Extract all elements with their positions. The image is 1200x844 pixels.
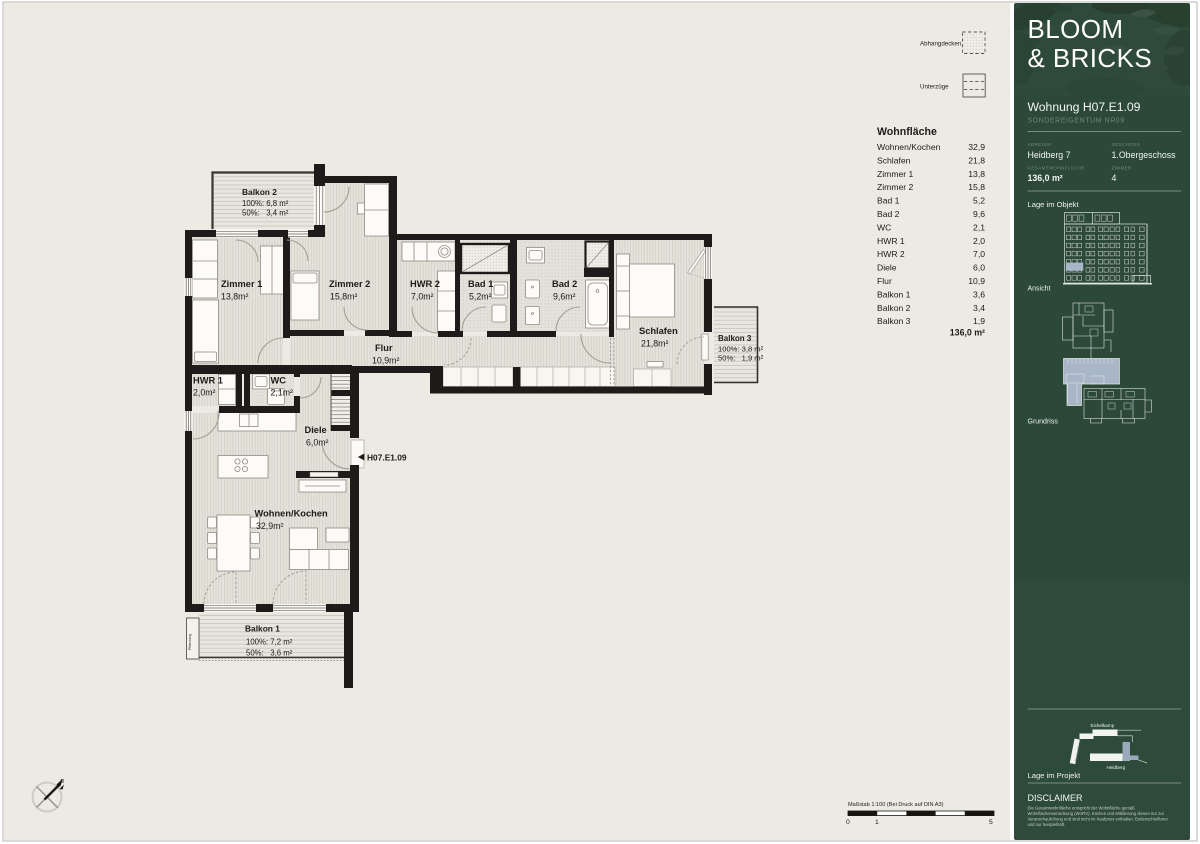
svg-text:Diele: Diele [877, 263, 897, 273]
svg-text:HWR 2: HWR 2 [877, 249, 905, 259]
svg-text:N: N [60, 779, 64, 785]
svg-text:GESCHOSS: GESCHOSS [1112, 142, 1141, 147]
svg-text:13,8m²: 13,8m² [221, 292, 248, 302]
svg-text:ADRESSE: ADRESSE [1028, 142, 1052, 147]
svg-text:Zimmer 1: Zimmer 1 [221, 279, 262, 289]
svg-text:2,0: 2,0 [973, 236, 985, 246]
svg-text:0: 0 [846, 819, 850, 826]
svg-text:9,6: 9,6 [973, 209, 985, 219]
svg-text:WC: WC [271, 376, 287, 386]
svg-text:Wohnfläche: Wohnfläche [877, 126, 937, 138]
svg-text:50%: 3,4 m²: 50%: 3,4 m² [242, 209, 289, 218]
svg-text:Schlafen: Schlafen [877, 155, 911, 165]
svg-text:5,2: 5,2 [973, 196, 985, 206]
svg-text:Balkon 3: Balkon 3 [877, 316, 911, 326]
svg-text:Flur: Flur [375, 343, 393, 353]
svg-text:Grundriss: Grundriss [1028, 419, 1059, 426]
svg-text:Ansicht: Ansicht [1028, 286, 1051, 293]
svg-text:15,8m²: 15,8m² [330, 292, 357, 302]
svg-text:Wohnen/Kochen: Wohnen/Kochen [877, 142, 941, 152]
svg-text:3,6: 3,6 [973, 289, 985, 299]
svg-text:Wohnen/Kochen: Wohnen/Kochen [255, 509, 328, 519]
svg-text:Bad 2: Bad 2 [552, 279, 577, 289]
svg-text:Maßstab 1:100 (Bei Druck auf D: Maßstab 1:100 (Bei Druck auf DIN A3) [848, 802, 944, 808]
svg-text:& BRICKS: & BRICKS [1028, 43, 1153, 73]
svg-text:Bad 2: Bad 2 [877, 209, 900, 219]
svg-text:Heidberg 7: Heidberg 7 [1028, 150, 1071, 160]
svg-text:und nur beispielhaft.: und nur beispielhaft. [1028, 822, 1066, 827]
svg-text:10,9: 10,9 [968, 276, 985, 286]
svg-text:Flur: Flur [877, 276, 892, 286]
svg-text:1,9: 1,9 [973, 316, 985, 326]
svg-text:Heidberg: Heidberg [1107, 765, 1126, 770]
svg-text:32,9: 32,9 [968, 142, 985, 152]
svg-text:Zimmer 2: Zimmer 2 [329, 279, 370, 289]
svg-text:6,0m²: 6,0m² [306, 438, 329, 448]
svg-text:5,2m²: 5,2m² [469, 292, 492, 302]
svg-text:Unterzüge: Unterzüge [920, 84, 949, 91]
svg-text:100%: 6,8 m²: 100%: 6,8 m² [242, 199, 289, 208]
svg-text:HWR 2: HWR 2 [410, 279, 440, 289]
svg-text:3,4: 3,4 [973, 303, 985, 313]
svg-text:100%: 7,2 m²: 100%: 7,2 m² [246, 638, 293, 647]
svg-text:Balkon 3: Balkon 3 [718, 334, 752, 343]
svg-text:Wohnflächenverordnung (WoFlV).: Wohnflächenverordnung (WoFlV). Küchen un… [1028, 811, 1165, 816]
svg-text:Veranschaulichung und sind nic: Veranschaulichung und sind nicht im Kauf… [1028, 817, 1169, 822]
svg-text:Abhangdecken: Abhangdecken [920, 41, 962, 48]
svg-text:Balkon 1: Balkon 1 [245, 624, 280, 634]
svg-text:7,0m²: 7,0m² [411, 292, 434, 302]
svg-text:WC: WC [877, 222, 891, 232]
svg-text:7,0: 7,0 [973, 249, 985, 259]
svg-text:Pflanzung: Pflanzung [188, 634, 192, 650]
svg-text:10,9m²: 10,9m² [372, 356, 399, 366]
svg-text:SONDEREIGENTUM NR09: SONDEREIGENTUM NR09 [1028, 118, 1125, 125]
svg-text:136,0 m²: 136,0 m² [950, 328, 985, 338]
svg-text:6,0: 6,0 [973, 263, 985, 273]
svg-text:Wohnung H07.E1.09: Wohnung H07.E1.09 [1028, 100, 1141, 114]
svg-text:Die Gesamtwohnfläche entsprich: Die Gesamtwohnfläche entspricht der Wohn… [1028, 806, 1136, 811]
svg-text:H07.E1.09: H07.E1.09 [367, 453, 407, 463]
svg-text:GESAMTWOHNFLÄCHE: GESAMTWOHNFLÄCHE [1028, 165, 1085, 171]
svg-text:Schlafen: Schlafen [639, 326, 678, 336]
svg-text:9,6m²: 9,6m² [553, 292, 576, 302]
svg-text:Bad 1: Bad 1 [468, 279, 493, 289]
svg-text:Diele: Diele [305, 425, 327, 435]
svg-text:21,8: 21,8 [968, 155, 985, 165]
svg-text:Lage im Projekt: Lage im Projekt [1028, 771, 1082, 780]
svg-text:Bad 1: Bad 1 [877, 196, 900, 206]
svg-text:4: 4 [1112, 173, 1117, 183]
svg-text:Zimmer 1: Zimmer 1 [877, 169, 914, 179]
svg-text:Eichelkamp: Eichelkamp [1091, 723, 1115, 728]
svg-text:Balkon 1: Balkon 1 [877, 289, 911, 299]
svg-text:Lage im Objekt: Lage im Objekt [1028, 200, 1080, 209]
svg-text:32,9m²: 32,9m² [256, 521, 283, 531]
svg-text:2,1m²: 2,1m² [271, 388, 294, 398]
svg-text:1: 1 [875, 819, 879, 826]
svg-text:50%: 3,6 m²: 50%: 3,6 m² [246, 649, 293, 658]
svg-text:HWR 1: HWR 1 [193, 376, 223, 386]
svg-text:13,8: 13,8 [968, 169, 985, 179]
svg-text:100%: 3,8 m²: 100%: 3,8 m² [718, 345, 764, 354]
svg-text:Balkon 2: Balkon 2 [242, 187, 277, 197]
svg-text:ZIMMER: ZIMMER [1112, 166, 1132, 171]
svg-text:15,8: 15,8 [968, 182, 985, 192]
svg-text:5: 5 [989, 819, 993, 826]
svg-text:1.Obergeschoss: 1.Obergeschoss [1112, 150, 1177, 160]
svg-text:2,0m²: 2,0m² [193, 388, 216, 398]
svg-text:Zimmer 2: Zimmer 2 [877, 182, 914, 192]
svg-text:21,8m²: 21,8m² [641, 339, 668, 349]
svg-text:2,1: 2,1 [973, 222, 985, 232]
svg-text:50%: 1,9 m²: 50%: 1,9 m² [718, 354, 764, 363]
svg-text:Balkon 2: Balkon 2 [877, 303, 911, 313]
svg-text:BLOOM: BLOOM [1028, 14, 1124, 44]
svg-text:HWR 1: HWR 1 [877, 236, 905, 246]
svg-text:136,0 m²: 136,0 m² [1028, 173, 1063, 183]
svg-text:DISCLAIMER: DISCLAIMER [1028, 793, 1084, 803]
